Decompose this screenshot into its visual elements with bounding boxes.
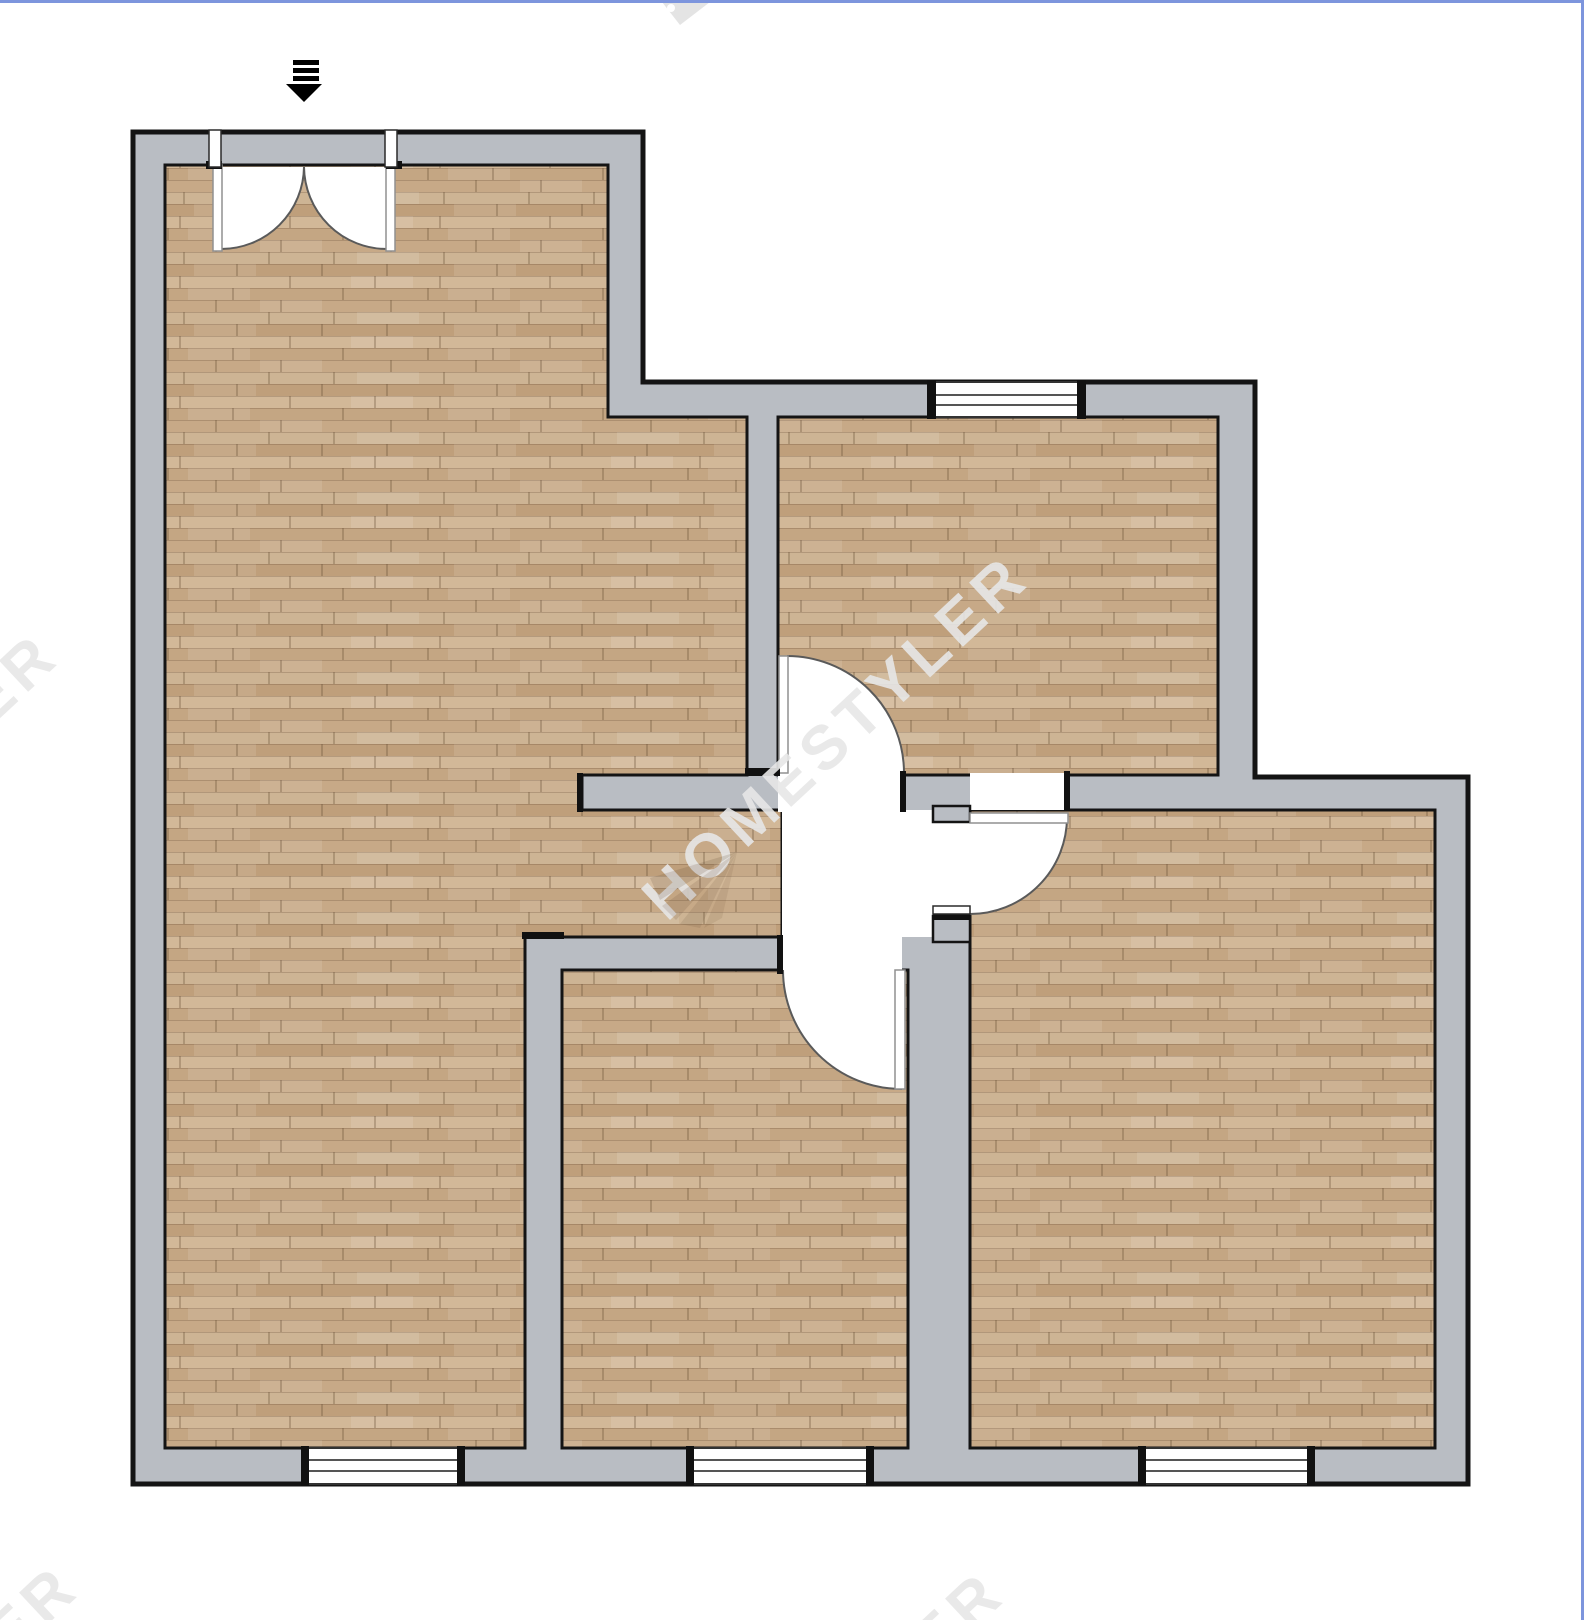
door-jamb-frame bbox=[933, 906, 970, 914]
floor-plan-canvas[interactable]: HOMESTYLERHOMESTYLERHOMESTYLERHOMESTYLER bbox=[0, 0, 1584, 1620]
canvas-selection-border bbox=[0, 0, 1584, 3]
entrance-arrow-head bbox=[286, 84, 322, 102]
door-jamb-stub bbox=[933, 806, 970, 822]
window-north-frame bbox=[935, 382, 1078, 417]
entrance-arrow-icon bbox=[286, 60, 322, 102]
homestyler-watermark-text: HOMESTYLER bbox=[605, 1557, 1018, 1620]
door-jamb-frame bbox=[385, 130, 397, 167]
homestyler-watermark-text: HOMESTYLER bbox=[0, 619, 73, 1011]
door-south-middle-leaf bbox=[895, 970, 905, 1089]
wall-end-cap bbox=[522, 932, 564, 939]
hall-white-area-right bbox=[933, 810, 970, 906]
wall-end-cap bbox=[900, 771, 906, 812]
door-southeast-leaf bbox=[970, 813, 1068, 823]
window-south-left-frame bbox=[308, 1448, 458, 1484]
window-north-cap bbox=[927, 380, 936, 419]
window-north-mullion bbox=[935, 394, 1078, 396]
window-south-middle-mullion bbox=[693, 1470, 867, 1472]
entrance-arrow-bar bbox=[293, 60, 319, 65]
homestyler-logo-hole bbox=[667, 4, 675, 12]
entrance-arrow-bar bbox=[293, 68, 319, 73]
entrance-double-door-leaf bbox=[386, 165, 395, 251]
window-south-right-cap bbox=[1138, 1446, 1146, 1486]
window-south-left-cap bbox=[301, 1446, 309, 1486]
window-south-left-mullion bbox=[308, 1470, 458, 1472]
window-south-middle-mullion bbox=[693, 1459, 867, 1461]
wall-end-cap bbox=[1064, 771, 1070, 811]
entrance-arrow-bar bbox=[293, 76, 319, 81]
window-south-right-mullion bbox=[1145, 1459, 1308, 1461]
window-south-right-mullion bbox=[1145, 1470, 1308, 1472]
door-jamb-frame bbox=[209, 130, 221, 167]
window-south-middle bbox=[686, 1446, 874, 1486]
doorway-south-middle bbox=[782, 937, 902, 972]
window-north-mullion bbox=[935, 404, 1078, 406]
window-south-middle-cap bbox=[866, 1446, 874, 1486]
entrance-double-door-leaf bbox=[213, 165, 222, 251]
wall-end-cap bbox=[933, 914, 970, 920]
floor-plan-drawing: HOMESTYLERHOMESTYLERHOMESTYLERHOMESTYLER bbox=[0, 0, 1584, 1620]
window-south-left bbox=[301, 1446, 465, 1486]
window-south-left-cap bbox=[457, 1446, 465, 1486]
window-south-left-mullion bbox=[308, 1459, 458, 1461]
wall-end-cap bbox=[577, 773, 583, 812]
doorway-southeast bbox=[970, 773, 1068, 810]
window-south-right-frame bbox=[1145, 1448, 1308, 1484]
window-south-right bbox=[1138, 1446, 1315, 1486]
floor-room-southeast bbox=[970, 810, 1435, 1448]
window-north bbox=[927, 380, 1086, 419]
window-north-cap bbox=[1077, 380, 1086, 419]
homestyler-watermark-text: HOMESTYLER bbox=[0, 1551, 93, 1620]
window-south-middle-cap bbox=[686, 1446, 694, 1486]
window-south-middle-frame bbox=[693, 1448, 867, 1484]
hall-white-area bbox=[782, 810, 933, 937]
wall-end-cap bbox=[777, 935, 783, 974]
window-south-right-cap bbox=[1307, 1446, 1315, 1486]
